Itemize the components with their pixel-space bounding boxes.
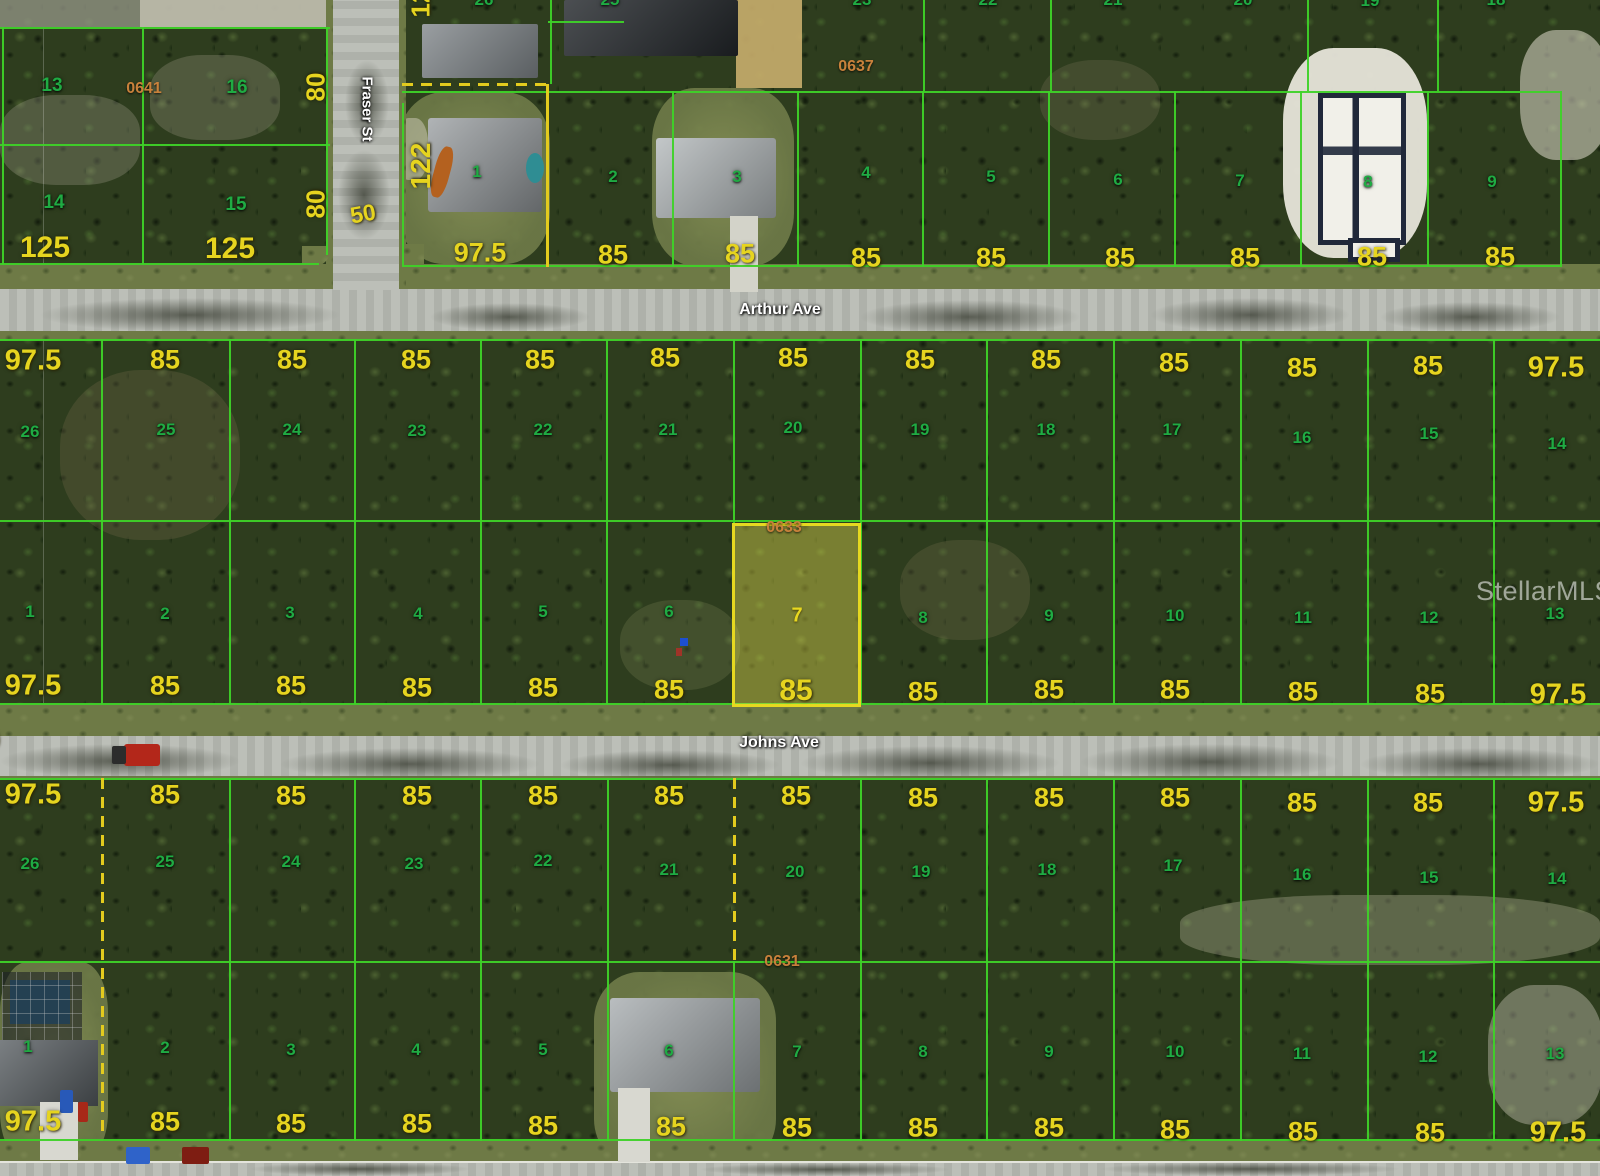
dimension-label: 85 [1105, 243, 1135, 274]
dimension-label: 85 [150, 780, 180, 811]
parcel-line [1307, 0, 1309, 91]
parcel-line [1560, 91, 1562, 267]
dimension-label: 97.5 [5, 1106, 61, 1139]
dimension-label: 85 [150, 345, 180, 376]
partial-label: 12 [406, 0, 437, 17]
parcel-line [923, 0, 925, 91]
partial-label: 18 [1487, 0, 1506, 10]
dimension-label: 85 [778, 343, 808, 374]
partial-label: 25 [601, 0, 620, 10]
lot-number-label: 22 [534, 420, 553, 440]
lot-number-label: 17 [1164, 856, 1183, 876]
dimension-label: 85 [528, 1111, 558, 1142]
truck-cab [112, 746, 126, 764]
partial-label: 21 [1104, 0, 1123, 10]
dimension-label: 85 [905, 345, 935, 376]
road-verge [0, 704, 1600, 736]
lot-number-label: 19 [911, 420, 930, 440]
dimension-label: 85 [1230, 243, 1260, 274]
lot-number-label: 15 [1420, 868, 1439, 888]
lot-number-label: 11 [1293, 1044, 1311, 1064]
lot-number-label: 22 [534, 851, 553, 871]
trash-bin-red [78, 1102, 88, 1122]
parcel-line [2, 27, 4, 265]
lot-number-label: 16 [1293, 865, 1312, 885]
lot-number-label: 18 [1038, 860, 1057, 880]
parcel-line [672, 91, 674, 267]
parcel-line-dashed [733, 778, 736, 963]
parcel-line [1493, 339, 1495, 705]
satellite-plat-map: Arthur Ave Johns Ave Fraser St 0641 0637… [0, 0, 1600, 1176]
tree-shadow [40, 298, 340, 332]
dimension-label: 85 [1485, 242, 1515, 273]
street-label-johns-ave: Johns Ave [739, 734, 819, 752]
terrain-clearing [140, 0, 330, 27]
dimension-label: 85 [1031, 345, 1061, 376]
dimension-label: 85 [908, 1113, 938, 1144]
dimension-label: 50 [348, 198, 378, 229]
dimension-label: 85 [598, 240, 628, 271]
parcel-line [0, 339, 1600, 341]
dimension-label: 97.5 [1528, 352, 1584, 385]
parcel-line [606, 339, 608, 705]
lot-number-label: 14 [1548, 434, 1567, 454]
tree-shadow [430, 303, 590, 331]
lot-number-label: 7 [792, 1042, 801, 1062]
dimension-label: 85 [1415, 1118, 1445, 1149]
parcel-line [1367, 339, 1369, 705]
lot-number-label: 10 [1166, 1042, 1185, 1062]
car-blue [126, 1147, 150, 1164]
driveway [618, 1088, 650, 1162]
survey-flag [676, 648, 682, 656]
parcel-line [480, 778, 482, 1141]
lot-number-label: 2 [160, 604, 169, 624]
lot-number-label: 1 [25, 602, 34, 622]
partial-label: 23 [853, 0, 872, 10]
dimension-label: 85 [1160, 783, 1190, 814]
lot-number-label: 3 [286, 1040, 295, 1060]
dimension-label: 85 [654, 781, 684, 812]
dimension-label: 125 [20, 231, 70, 265]
lot-number-label: 4 [861, 163, 870, 183]
lot-number-label: 7 [791, 605, 802, 628]
lot-number-label: 20 [786, 862, 805, 882]
dimension-label: 85 [1287, 353, 1317, 384]
parcel-line [1437, 0, 1439, 91]
lot-number-label: 24 [283, 420, 302, 440]
dimension-label: 122 [405, 143, 437, 190]
parcel-line-dashed [101, 778, 104, 1139]
parcel-line [1174, 91, 1176, 267]
parcel-line [101, 339, 103, 705]
lot-number-label: 13 [41, 75, 62, 97]
dimension-label: 85 [402, 673, 432, 704]
lot-number-label: 12 [1420, 608, 1439, 628]
road-fraser-st [333, 0, 399, 290]
parcel-line [860, 778, 862, 1141]
parcel-line [142, 27, 144, 265]
dimension-label: 85 [656, 1112, 686, 1143]
lot-number-label: 16 [1293, 428, 1312, 448]
parcel-line [1367, 778, 1369, 1141]
block-number-0641: 0641 [126, 80, 162, 98]
parcel-line [0, 144, 330, 146]
parcel-line [0, 27, 330, 29]
lot-number-label: 10 [1166, 606, 1185, 626]
lot-number-label: 8 [918, 1042, 927, 1062]
parcel-line [229, 778, 231, 1141]
lot-number-label: 14 [1548, 869, 1567, 889]
lot-number-label: 24 [282, 852, 301, 872]
lot-number-label: 8 [918, 608, 927, 628]
dimension-label: 85 [1159, 348, 1189, 379]
lot-number-label: 25 [156, 852, 175, 872]
parcel-line [607, 778, 609, 1141]
lot-number-label: 25 [157, 420, 176, 440]
dimension-label: 85 [150, 671, 180, 702]
lot-number-label: 15 [1420, 424, 1439, 444]
parcel-line-dashed [402, 83, 548, 86]
parcel-line [1300, 91, 1302, 267]
lot-number-label: 5 [538, 602, 547, 622]
lot-number-label: 4 [413, 604, 422, 624]
car-red [182, 1147, 209, 1164]
dimension-label: 85 [402, 1109, 432, 1140]
lot-number-label: 2 [608, 167, 617, 187]
lot-number-label: 23 [408, 421, 427, 441]
lot-number-label: 15 [225, 194, 246, 216]
tree-shadow [560, 750, 780, 780]
driveway [736, 0, 802, 88]
dimension-label: 97.5 [1530, 679, 1586, 712]
lot-number-label: 23 [405, 854, 424, 874]
lot-number-label: 5 [986, 167, 995, 187]
truck-red [124, 744, 160, 766]
dimension-label: 97.5 [1530, 1117, 1586, 1150]
lot-number-label: 20 [784, 418, 803, 438]
dimension-label: 97.5 [5, 670, 61, 703]
lot-number-label: 3 [732, 167, 741, 187]
dimension-label: 85 [1287, 788, 1317, 819]
partial-label: 22 [979, 0, 998, 10]
dimension-label: 85 [528, 781, 558, 812]
pool-enclosure [2, 972, 82, 1044]
dimension-label: 85 [277, 345, 307, 376]
tree-shadow [1360, 748, 1600, 780]
tree-shadow [860, 300, 1080, 334]
parcel-line [986, 778, 988, 1141]
street-label-fraser-st: Fraser St [359, 76, 376, 141]
lot-number-label: 17 [1163, 420, 1182, 440]
partial-label: 26 [475, 0, 494, 10]
lot-number-label: 9 [1044, 606, 1053, 626]
parcel-line [229, 339, 231, 705]
street-label-arthur-ave: Arthur Ave [739, 301, 821, 319]
dimension-label: 85 [851, 243, 881, 274]
lot-number-label: 4 [411, 1040, 420, 1060]
terrain-patch [0, 95, 140, 185]
parcel-line [986, 339, 988, 705]
dimension-label: 85 [1160, 675, 1190, 706]
parcel-line [354, 339, 356, 705]
partial-label: 20 [1234, 0, 1253, 10]
parcel-line [1427, 91, 1429, 267]
lot-number-label: 8 [1363, 172, 1372, 192]
tree-shadow [700, 1163, 950, 1176]
dimension-label: 85 [650, 343, 680, 374]
dimension-label: 85 [1357, 242, 1387, 273]
dimension-label: 85 [1034, 1113, 1064, 1144]
lot-number-label: 18 [1037, 420, 1056, 440]
road-verge [0, 1141, 1600, 1162]
parcel-line [1048, 91, 1050, 267]
lot-number-label: 19 [912, 862, 931, 882]
parcel-line [733, 961, 735, 1141]
dimension-label: 85 [654, 675, 684, 706]
lot-number-label: 11 [1294, 608, 1312, 628]
tree-shadow [1150, 298, 1350, 332]
parcel-line [550, 0, 552, 84]
house-roof [610, 998, 760, 1092]
tree-shadow [250, 1162, 470, 1176]
dimension-label: 85 [1415, 679, 1445, 710]
lot-number-label: 14 [43, 192, 64, 214]
dimension-label: 85 [976, 243, 1006, 274]
trash-bin-blue [60, 1090, 73, 1113]
dimension-label: 85 [908, 677, 938, 708]
lot-number-label: 3 [285, 603, 294, 623]
dimension-label: 125 [205, 232, 255, 266]
lot-number-label: 21 [659, 420, 678, 440]
tree-shadow [800, 746, 1060, 780]
parcel-line [922, 91, 924, 267]
lot-number-label: 9 [1044, 1042, 1053, 1062]
parcel-line [1113, 778, 1115, 1141]
parcel-line [1240, 339, 1242, 705]
parcel-line [797, 91, 799, 267]
dimension-label: 85 [1413, 788, 1443, 819]
dimension-label: 85 [276, 781, 306, 812]
dimension-label: 85 [781, 781, 811, 812]
block-number-0637: 0637 [838, 58, 874, 76]
dimension-label: 80 [301, 190, 332, 219]
dimension-label: 85 [276, 671, 306, 702]
parcel-line [1113, 339, 1115, 705]
dimension-label: 85 [1413, 351, 1443, 382]
terrain-patch [1180, 895, 1600, 965]
mls-watermark: StellarMLS [1476, 576, 1600, 607]
house-roof [656, 138, 776, 218]
lot-number-label: 26 [21, 422, 40, 442]
dimension-label: 85 [1288, 1117, 1318, 1148]
tree-shadow [1380, 302, 1560, 332]
survey-flag [680, 638, 688, 646]
parcel-line [1050, 0, 1052, 91]
terrain-patch [1040, 60, 1160, 140]
parcel-line [326, 27, 328, 255]
dimension-label: 85 [150, 1107, 180, 1138]
tree-shadow [280, 748, 540, 780]
parcel-line [402, 103, 404, 265]
lot-number-label: 7 [1235, 171, 1244, 191]
construction-slab [1318, 93, 1406, 245]
house-roof [0, 1040, 98, 1106]
tree-shadow [1100, 1162, 1400, 1176]
dimension-label: 85 [779, 674, 812, 708]
block-number-0633: 0633 [766, 519, 802, 537]
lot-number-label: 6 [664, 1041, 673, 1061]
parcel-line [548, 21, 624, 23]
lot-number-label: 12 [1419, 1047, 1438, 1067]
dimension-label: 85 [782, 1113, 812, 1144]
lot-number-label: 16 [226, 77, 247, 99]
parcel-line [480, 339, 482, 705]
dimension-label: 85 [1160, 1115, 1190, 1146]
lot-number-label: 9 [1487, 172, 1496, 192]
dimension-label: 97.5 [1528, 787, 1584, 820]
lot-number-label: 1 [23, 1037, 32, 1057]
lot-number-label: 26 [21, 854, 40, 874]
lot-number-label: 2 [160, 1038, 169, 1058]
parcel-line [1240, 778, 1242, 1141]
tree-shadow [1080, 744, 1340, 780]
parcel-line [1493, 778, 1495, 1141]
terrain-patch [60, 370, 240, 540]
lot-number-label: 5 [538, 1040, 547, 1060]
terrain-patch [1488, 985, 1600, 1125]
parcel-line-yellow [546, 84, 549, 267]
dimension-label: 85 [402, 781, 432, 812]
lot-number-label: 21 [660, 860, 679, 880]
dimension-label: 85 [725, 239, 755, 270]
lot-number-label: 13 [1546, 604, 1565, 624]
terrain-patch [150, 55, 280, 140]
pool [526, 153, 544, 183]
dimension-label: 97.5 [454, 238, 507, 269]
lot-number-label: 6 [1113, 170, 1122, 190]
lot-number-label: 1 [472, 162, 481, 182]
dimension-label: 85 [528, 673, 558, 704]
parcel-line [402, 91, 1560, 93]
dimension-label: 80 [301, 73, 332, 102]
dimension-label: 85 [276, 1109, 306, 1140]
dimension-label: 85 [525, 345, 555, 376]
house-roof [422, 24, 538, 78]
partial-label: 19 [1361, 0, 1380, 11]
dimension-label: 85 [908, 783, 938, 814]
dimension-label: 85 [1034, 783, 1064, 814]
dimension-label: 97.5 [5, 345, 61, 378]
dimension-label: 97.5 [5, 779, 61, 812]
lot-number-label: 6 [664, 602, 673, 622]
lot-number-label: 13 [1546, 1044, 1565, 1064]
block-number-0631: 0631 [764, 953, 800, 971]
parcel-line [354, 778, 356, 1141]
dimension-label: 85 [401, 345, 431, 376]
house-roof [564, 0, 738, 56]
dimension-label: 85 [1034, 675, 1064, 706]
dimension-label: 85 [1288, 677, 1318, 708]
